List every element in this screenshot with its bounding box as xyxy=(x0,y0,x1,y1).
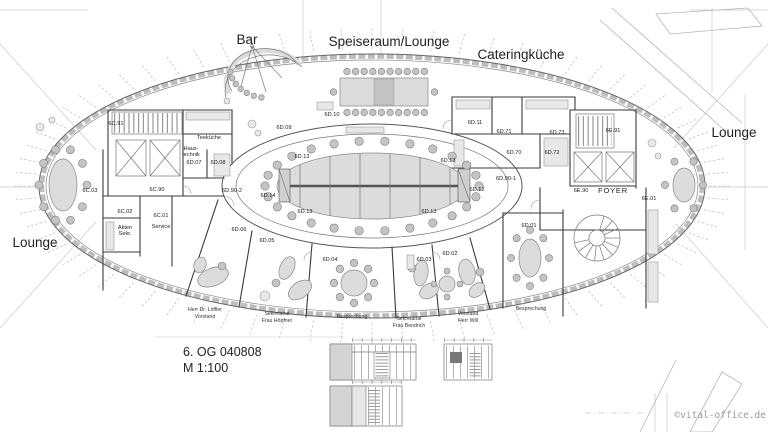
name-label-will-2: Herr Will xyxy=(458,318,478,324)
room-label-6d12: 6D.12 xyxy=(470,187,485,193)
room-label-6d05: 6D.05 xyxy=(260,238,275,244)
spiral-staircase xyxy=(574,215,620,261)
cabinet-elevation-drawings xyxy=(330,340,492,426)
name-label-hoepfner-2: Frau Höpfner xyxy=(262,318,293,324)
meeting-table-right xyxy=(519,239,541,277)
room-label-6c01: 6C.01 xyxy=(154,213,169,219)
name-label-besprechung-left: Besprechung xyxy=(337,314,368,320)
room-label-6d90-2: 6D.90-2 xyxy=(222,188,242,194)
room-label-6e01: 6E.01 xyxy=(642,196,657,202)
room-label-6d70: 6D.70 xyxy=(507,150,522,156)
name-label-hoepfner-1: Sekretariat xyxy=(264,311,290,317)
elevation-c xyxy=(330,382,402,426)
floor-plan-sheet: Bar Speiseraum/Lounge Cateringküche Loun… xyxy=(0,0,768,432)
room-label-6d71: 6D.71 xyxy=(497,129,512,135)
area-label-bar: Bar xyxy=(236,32,258,47)
room-label-6d11: 6D.11 xyxy=(468,120,483,126)
room-label-service: Service xyxy=(152,224,171,230)
room-label-6e90: 6E.90 xyxy=(574,188,589,194)
meeting-table-left xyxy=(341,270,367,296)
area-label-lounge-left: Lounge xyxy=(12,235,57,250)
watermark-vital-office: ©vital-office.de xyxy=(674,410,766,421)
room-label-6d13-3: 6D.13 xyxy=(298,209,313,215)
title-block-scale: M 1:100 xyxy=(183,361,228,375)
room-label-6d13-1: 6D.13 xyxy=(295,154,310,160)
room-label-6d90-1: 6D.90-1 xyxy=(496,176,516,182)
room-label-6d72: 6D.72 xyxy=(545,150,560,156)
name-label-besprechung-right: Besprechung xyxy=(516,306,547,312)
name-label-bendrich-2: Frau Bendrich xyxy=(393,323,426,329)
name-label-bendrich-1: Sekretariat xyxy=(396,316,422,322)
room-label-6d01: 6D.01 xyxy=(522,223,537,229)
room-label-6c02: 6C.02 xyxy=(118,209,133,215)
elevation-b xyxy=(444,340,492,380)
area-label-lounge-right: Lounge xyxy=(711,125,756,140)
name-label-will-1: Vorstand xyxy=(458,311,479,317)
lounge-left-table xyxy=(49,159,77,211)
room-label-akten-2: Sekr. xyxy=(119,231,132,237)
room-label-6d10: 6D.10 xyxy=(325,112,340,118)
name-label-loeffler-2: Vorstand xyxy=(195,314,216,320)
room-label-foyer: FOYER xyxy=(598,186,628,195)
room-label-6c03: 6C.03 xyxy=(83,188,98,194)
room-label-6d14: 6D.14 xyxy=(261,193,276,199)
room-label-6d02: 6D.02 xyxy=(443,251,458,257)
room-label-6e91: 6E.91 xyxy=(606,128,621,134)
room-label-6c91: 6C.91 xyxy=(109,121,124,127)
area-label-speiseraum: Speiseraum/Lounge xyxy=(329,34,450,49)
room-label-6d09: 6D.09 xyxy=(277,125,292,131)
room-label-6c90: 6C.90 xyxy=(150,187,165,193)
small-round-table xyxy=(439,276,455,292)
room-label-6d07: 6D.07 xyxy=(187,160,202,166)
room-label-6d08: 6D.08 xyxy=(211,160,226,166)
room-label-haustechnik-2: technik xyxy=(182,152,200,158)
room-label-6d03: 6D.03 xyxy=(417,257,432,263)
lounge-right-table xyxy=(673,168,695,202)
room-label-teekueche: Teeküche xyxy=(197,135,221,141)
name-label-loeffler-1: Herr Dr. Löffler xyxy=(188,307,222,313)
area-label-cateringkueche: Cateringküche xyxy=(477,47,564,62)
floor-plan-drawing: Bar Speiseraum/Lounge Cateringküche Loun… xyxy=(0,0,768,432)
room-label-6d73: 6D.73 xyxy=(550,130,565,136)
room-label-6d04: 6D.04 xyxy=(323,257,338,263)
title-block-drawing: 6. OG 040808 xyxy=(183,345,262,359)
elevation-a xyxy=(330,340,416,380)
room-label-6d13-2: 6D.13 xyxy=(441,158,456,164)
room-label-6d13-4: 6D.13 xyxy=(422,209,437,215)
room-label-6d06: 6D.06 xyxy=(232,227,247,233)
